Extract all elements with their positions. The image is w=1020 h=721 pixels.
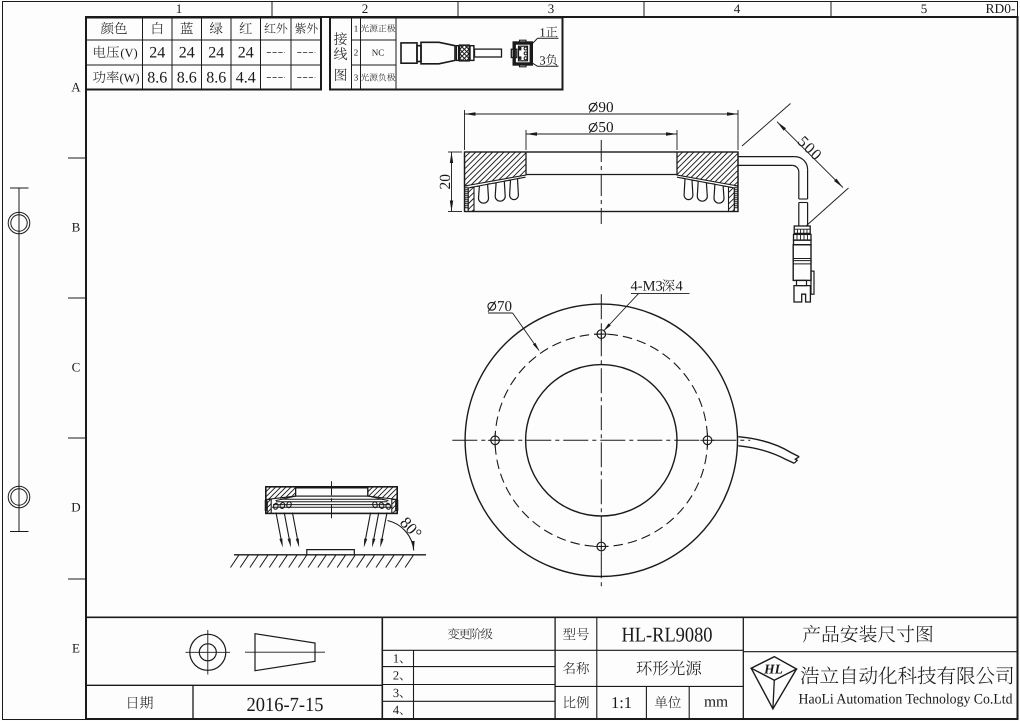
svg-text:50: 50 — [598, 119, 614, 136]
svg-text:24: 24 — [179, 45, 195, 62]
svg-text:NC: NC — [372, 48, 385, 58]
svg-text:3: 3 — [548, 1, 555, 16]
svg-text:D: D — [71, 500, 80, 515]
svg-text:1: 1 — [539, 25, 545, 39]
svg-text:HL-RL9080: HL-RL9080 — [622, 623, 713, 647]
svg-text:8.6: 8.6 — [206, 70, 226, 87]
svg-text:3: 3 — [539, 53, 545, 67]
svg-text:90: 90 — [598, 99, 614, 116]
svg-text:4: 4 — [734, 1, 741, 16]
svg-text:24: 24 — [208, 45, 224, 62]
svg-text:B: B — [72, 220, 81, 235]
svg-text:HL: HL — [763, 662, 783, 677]
svg-text:4: 4 — [676, 279, 684, 295]
svg-text:(W): (W) — [119, 71, 139, 85]
svg-text:2016-7-15: 2016-7-15 — [247, 694, 324, 716]
svg-text:(V): (V) — [120, 46, 137, 60]
svg-text:5: 5 — [921, 1, 928, 16]
svg-text:C: C — [72, 360, 81, 375]
svg-text:4.4: 4.4 — [236, 70, 256, 87]
svg-text:8.6: 8.6 — [177, 70, 197, 87]
svg-text:1:1: 1:1 — [611, 693, 632, 712]
svg-text:24: 24 — [238, 45, 254, 62]
svg-text:E: E — [72, 641, 80, 656]
svg-text:4: 4 — [393, 703, 400, 717]
svg-text:20: 20 — [437, 174, 454, 190]
svg-text:2: 2 — [362, 1, 369, 16]
svg-text:HaoLi Automation Technology Co: HaoLi Automation Technology Co.Ltd — [799, 691, 1014, 707]
svg-text:1: 1 — [354, 24, 359, 34]
svg-text:70: 70 — [497, 299, 512, 315]
svg-text:3: 3 — [393, 686, 399, 700]
svg-text:24: 24 — [149, 45, 165, 62]
svg-text:3: 3 — [354, 73, 359, 83]
svg-text:RD0-: RD0- — [986, 1, 1017, 16]
svg-text:2: 2 — [354, 48, 359, 58]
svg-text:mm: mm — [704, 694, 728, 711]
svg-text:4-M3: 4-M3 — [631, 279, 663, 295]
svg-text:8.6: 8.6 — [147, 70, 167, 87]
svg-text:A: A — [71, 80, 81, 95]
svg-text:1: 1 — [393, 651, 399, 665]
svg-text:2: 2 — [393, 669, 399, 683]
svg-text:1: 1 — [176, 1, 183, 16]
